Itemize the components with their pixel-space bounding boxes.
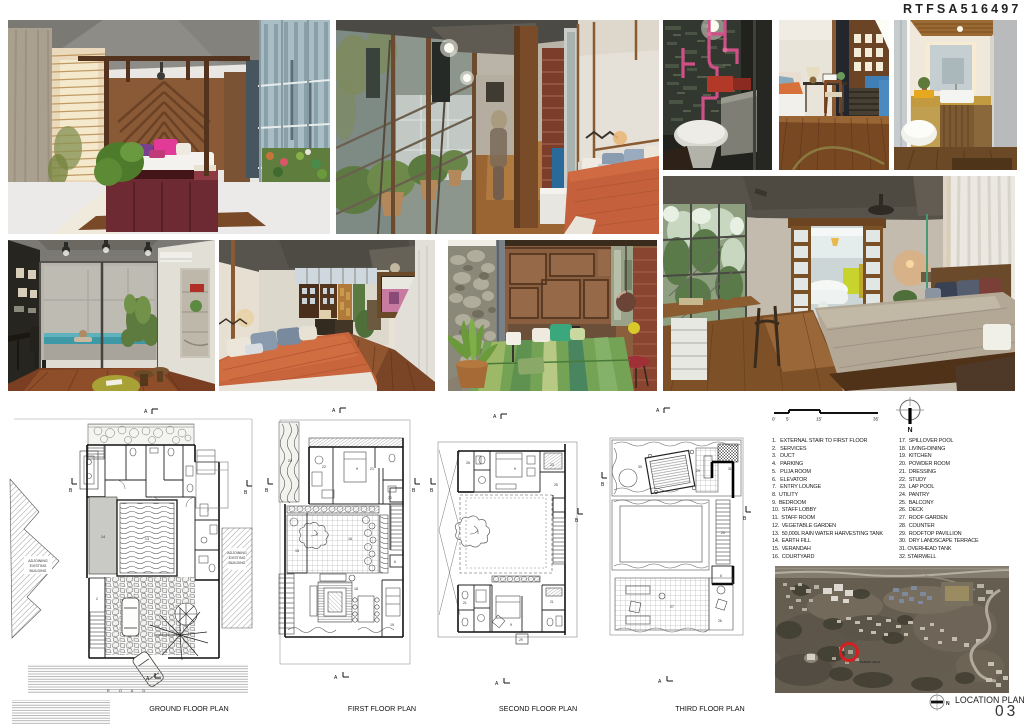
svg-text:B: B [69,488,73,494]
svg-text:B: B [575,518,579,524]
svg-text:29: 29 [288,459,292,463]
svg-text:A: A [144,409,148,415]
svg-text:22: 22 [322,465,326,469]
svg-text:21: 21 [550,600,554,604]
svg-text:EXISTING: EXISTING [229,556,246,560]
svg-text:35’: 35’ [873,417,879,422]
svg-text:5’: 5’ [786,417,790,422]
svg-text:27: 27 [670,605,674,609]
svg-text:6: 6 [720,574,722,578]
svg-text:6: 6 [394,560,396,564]
svg-text:9: 9 [510,623,512,627]
svg-text:N: N [907,427,912,434]
svg-text:21: 21 [370,467,374,471]
svg-text:15’: 15’ [816,417,822,422]
svg-text:B: B [244,490,248,496]
svg-text:SECOND FLOOR PLAN: SECOND FLOOR PLAN [499,704,577,713]
svg-text:19: 19 [390,623,394,627]
svg-text:GROUND FLOOR PLAN: GROUND FLOOR PLAN [149,704,228,713]
svg-text:ADJOINING: ADJOINING [28,559,48,563]
svg-text:EXISTING: EXISTING [30,564,47,568]
svg-text:N: N [946,701,950,707]
svg-text:9: 9 [514,467,516,471]
svg-text:30: 30 [638,465,642,469]
svg-text:B: B [430,488,434,494]
svg-text:21: 21 [463,601,467,605]
svg-text:26: 26 [466,461,470,465]
svg-text:B: B [265,488,269,494]
svg-text:A: A [658,679,662,685]
svg-text:B: B [412,488,416,494]
svg-text:25: 25 [554,483,558,487]
svg-text:A: A [493,414,497,420]
svg-text:13: 13 [145,537,149,541]
svg-text:ADJOINING: ADJOINING [227,551,247,555]
svg-text:2: 2 [96,597,98,601]
svg-text:16: 16 [348,537,352,541]
svg-text:23: 23 [550,463,554,467]
svg-text:7: 7 [207,509,209,513]
svg-text:14: 14 [101,535,105,539]
svg-text:B: B [601,482,605,488]
svg-text:A: A [332,408,336,414]
svg-text:9: 9 [356,467,358,471]
svg-text:25: 25 [721,531,725,535]
svg-text:0’: 0’ [772,417,776,422]
svg-text:15: 15 [295,549,299,553]
svg-text:BUILDING: BUILDING [229,561,246,565]
svg-text:29: 29 [519,638,523,642]
svg-text:BUILDING: BUILDING [30,569,47,573]
svg-text:THIRD FLOOR PLAN: THIRD FLOOR PLAN [675,704,745,713]
svg-text:31: 31 [728,467,732,471]
svg-text:A: A [334,675,338,681]
svg-text:PARSIK HILLS: PARSIK HILLS [860,660,880,664]
svg-text:A: A [656,408,660,414]
svg-text:FIRST FLOOR PLAN: FIRST FLOOR PLAN [348,704,416,713]
svg-text:A: A [495,681,499,687]
svg-text:18: 18 [354,587,358,591]
svg-text:R O A D: R O A D [107,688,149,693]
svg-text:26: 26 [718,619,722,623]
svg-text:B: B [743,516,747,522]
